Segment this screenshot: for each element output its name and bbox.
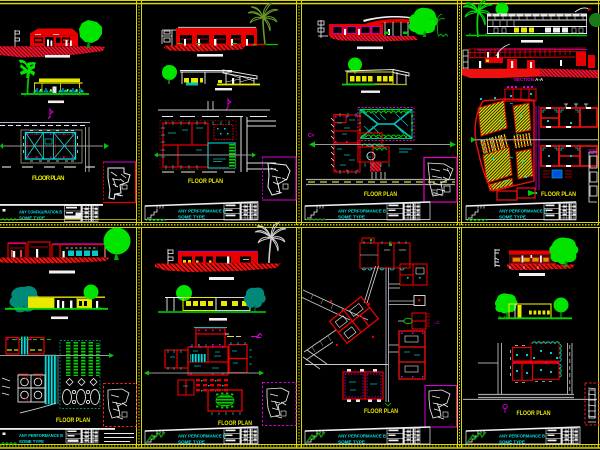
svg-text:FLOOR PLAN: FLOOR PLAN [32,176,65,182]
svg-text:FLOOR PLAN: FLOOR PLAN [517,411,551,417]
svg-text:ANY PERFORMANCE B: ANY PERFORMANCE B [499,209,548,214]
svg-text:ANY PERFORMANCE B: ANY PERFORMANCE B [178,209,227,214]
svg-text:0 0 0: 0 0 0 [156,206,164,210]
svg-text:SOME TYPE: SOME TYPE [499,440,525,445]
svg-text:ANY PERFORMANCE B: ANY PERFORMANCE B [338,209,387,214]
svg-text:ANY CONFIGURATION B: ANY CONFIGURATION B [19,210,63,215]
svg-text:SOME TYPE: SOME TYPE [19,439,44,444]
svg-text:FLOOR PLAN: FLOOR PLAN [541,192,576,198]
svg-text:SECTION A-A: SECTION A-A [514,77,544,82]
svg-text:ANY PERFORMANCE B: ANY PERFORMANCE B [19,433,64,438]
svg-text:0 0 0: 0 0 0 [316,206,324,210]
svg-text:SOME TYPE: SOME TYPE [338,215,365,220]
svg-text:ANY PERFORMANCE B: ANY PERFORMANCE B [499,434,546,439]
svg-text:SOME TYPE: SOME TYPE [499,215,526,220]
svg-text:ANY PERFORMANCE B: ANY PERFORMANCE B [338,434,387,439]
svg-text:SOME TYPE: SOME TYPE [19,216,45,221]
svg-text:0 0 0: 0 0 0 [477,206,485,210]
svg-text:FLOOR PLAN: FLOOR PLAN [364,192,397,198]
svg-text:FLOOR PLAN: FLOOR PLAN [218,421,252,427]
svg-text:FLOOR PLAN: FLOOR PLAN [364,409,398,415]
svg-text:ANY PERFORMANCE B: ANY PERFORMANCE B [178,434,227,439]
svg-text:FLOOR PLAN: FLOOR PLAN [56,418,90,424]
svg-text:SOME TYPE: SOME TYPE [178,215,205,220]
svg-text:=C: =C [590,150,597,155]
svg-text:SOME TYPE: SOME TYPE [178,440,205,445]
svg-text:=C: =C [434,320,441,325]
svg-text:SOME TYPE: SOME TYPE [338,440,365,445]
svg-text:C=: C= [308,133,315,139]
svg-text:FLOOR PLAN: FLOOR PLAN [188,179,223,185]
